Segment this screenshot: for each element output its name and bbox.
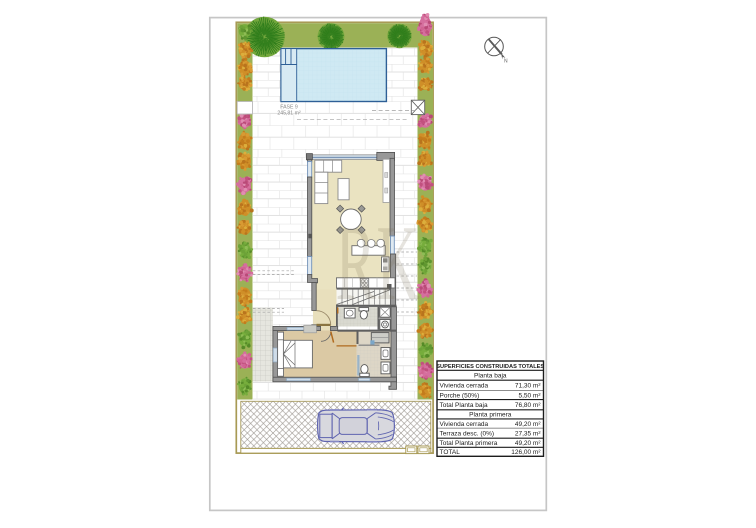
svg-text:49,20 m²: 49,20 m² xyxy=(515,440,541,447)
svg-text:Porche (50%): Porche (50%) xyxy=(440,392,480,399)
svg-text:Terraza desc. (0%): Terraza desc. (0%) xyxy=(440,430,495,437)
svg-text:49,20 m²: 49,20 m² xyxy=(515,421,541,428)
svg-text:245,81 m²: 245,81 m² xyxy=(277,111,301,117)
svg-text:Total Planta baja: Total Planta baja xyxy=(440,402,488,409)
svg-text:SUPERFICIES CONSTRUIDAS TOTALE: SUPERFICIES CONSTRUIDAS TOTALES xyxy=(436,364,544,370)
svg-text:TOTAL: TOTAL xyxy=(440,449,461,456)
svg-text:N: N xyxy=(504,59,508,65)
svg-text:Planta baja: Planta baja xyxy=(474,373,507,380)
svg-text:5,50 m²: 5,50 m² xyxy=(518,392,541,399)
svg-text:Vivienda cerrada: Vivienda cerrada xyxy=(440,383,489,390)
svg-text:Total Planta primera: Total Planta primera xyxy=(440,440,498,447)
svg-text:76,80 m²: 76,80 m² xyxy=(515,402,541,409)
svg-text:K: K xyxy=(376,203,420,323)
svg-text:126,00 m²: 126,00 m² xyxy=(511,449,541,456)
svg-text:27,35 m²: 27,35 m² xyxy=(515,430,541,437)
svg-text:71,30 m²: 71,30 m² xyxy=(515,383,541,390)
svg-text:Planta primera: Planta primera xyxy=(469,412,512,419)
svg-text:Vivienda cerrada: Vivienda cerrada xyxy=(440,421,489,428)
svg-text:R: R xyxy=(336,203,377,323)
